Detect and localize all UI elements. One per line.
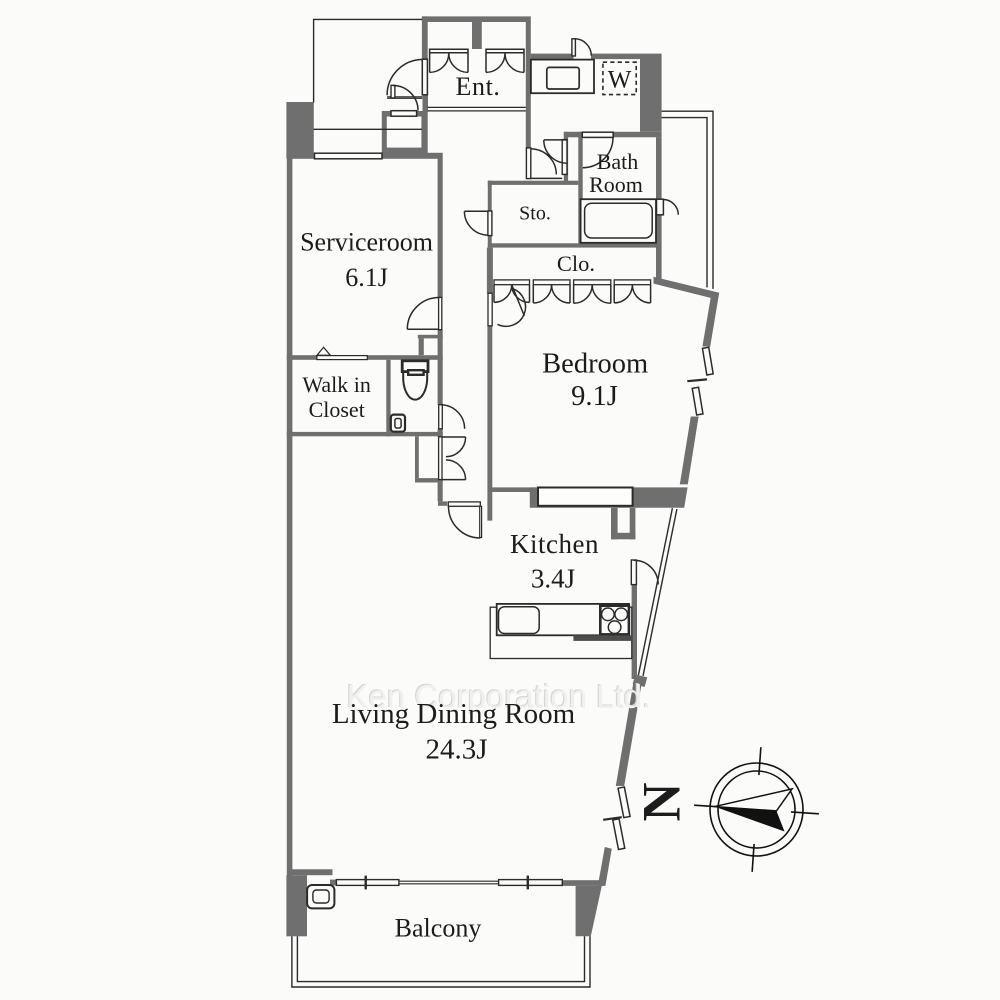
svg-text:Ent.: Ent. bbox=[455, 72, 500, 101]
svg-text:W: W bbox=[608, 67, 632, 94]
svg-text:Kitchen: Kitchen bbox=[510, 529, 599, 559]
svg-text:Bath: Bath bbox=[597, 149, 639, 174]
svg-text:24.3J: 24.3J bbox=[425, 734, 487, 766]
svg-text:6.1J: 6.1J bbox=[345, 263, 388, 292]
svg-text:Closet: Closet bbox=[309, 397, 365, 422]
svg-text:Sto.: Sto. bbox=[519, 203, 551, 225]
svg-text:Room: Room bbox=[589, 172, 643, 197]
svg-text:Serviceroom: Serviceroom bbox=[300, 228, 433, 257]
svg-text:Living Dining Room: Living Dining Room bbox=[332, 698, 576, 730]
svg-text:Balcony: Balcony bbox=[395, 914, 482, 943]
svg-text:3.4J: 3.4J bbox=[531, 564, 575, 594]
svg-text:Walk in: Walk in bbox=[302, 372, 371, 397]
svg-text:Clo.: Clo. bbox=[557, 251, 595, 276]
svg-text:9.1J: 9.1J bbox=[571, 381, 618, 412]
svg-text:N: N bbox=[632, 783, 692, 822]
svg-text:Bedroom: Bedroom bbox=[542, 349, 648, 380]
